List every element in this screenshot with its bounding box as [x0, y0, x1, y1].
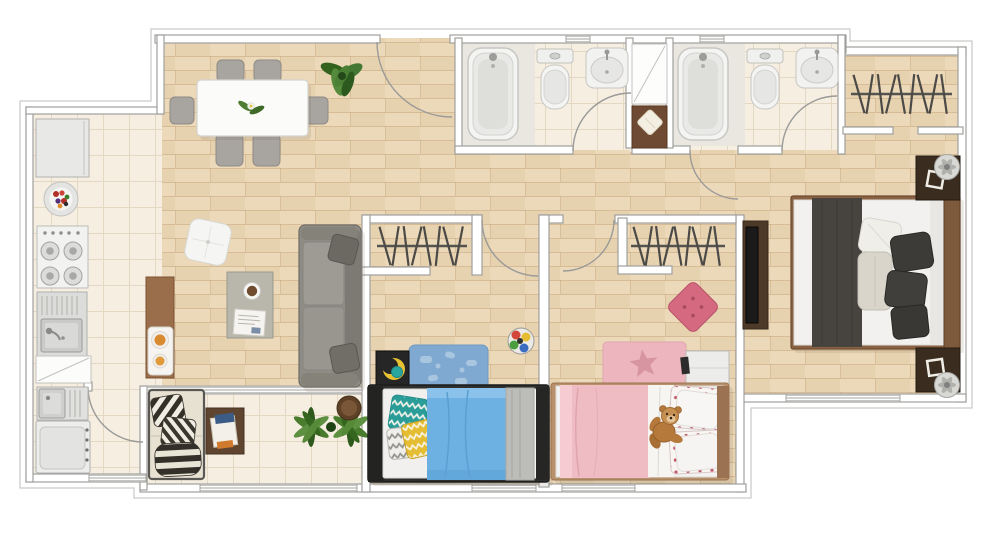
master-closet-wood-floor — [843, 50, 963, 134]
tv-screen — [746, 227, 758, 323]
sofa-pillow-top — [327, 233, 360, 266]
wall-bath1-west — [455, 38, 462, 152]
sink-drain — [61, 336, 65, 340]
tray-food-1 — [155, 335, 166, 346]
bath2-toilet-button — [760, 53, 770, 59]
wall-bath-south-c — [738, 146, 782, 154]
bath1-tub-drain — [491, 64, 495, 68]
wall-master-closet-south-b — [918, 127, 963, 134]
blue-rug-shape-3 — [466, 360, 477, 366]
palm-center — [326, 422, 336, 432]
wall-blue-closet-south — [362, 267, 430, 275]
fruit-4 — [55, 198, 60, 203]
wall-kitchen-top — [26, 107, 164, 114]
dining-chair-top-2 — [254, 60, 281, 82]
wall-pink-closet-west — [618, 218, 627, 273]
burner-2-center — [69, 247, 77, 255]
floor-plan-stage — [0, 0, 1000, 535]
toy-ball-patch-4 — [520, 344, 529, 353]
bath1-sink-bowl — [591, 57, 623, 83]
washer-hinge-1 — [85, 428, 88, 431]
wall-bedrooms-top-c — [615, 215, 736, 223]
bath2-tub-basin — [688, 59, 718, 129]
pink-bed-footboard — [717, 386, 729, 478]
wall-top-right — [843, 47, 966, 55]
pouf-button — [206, 240, 210, 244]
laundry-drain — [46, 396, 50, 400]
blue-bed-footboard — [536, 387, 549, 480]
bath1-toilet-seat — [544, 70, 566, 104]
bath1-toilet-button — [550, 53, 560, 59]
magazine — [233, 309, 266, 336]
dining-chair-top-1 — [217, 60, 244, 82]
blue-blanket-foldtop — [427, 388, 514, 398]
fan-bottom-center — [944, 382, 950, 388]
window-kitchen-bottom — [89, 474, 146, 482]
apartment-floor-plan — [0, 0, 1000, 535]
bath1-sink-faucet-dot — [605, 50, 610, 55]
blue-blanket-hem — [427, 470, 514, 480]
dining-chair-left — [170, 97, 194, 124]
coffee-cup-inner — [247, 286, 257, 296]
wall-top-a — [155, 35, 380, 43]
blue-blanket — [427, 388, 514, 480]
bath1-sink-drain — [605, 70, 609, 74]
teddy-eye-right — [673, 414, 675, 416]
window-bath2-top — [700, 35, 724, 43]
magazine-photo — [251, 327, 260, 334]
wall-bath2-east — [838, 35, 845, 154]
blue-rug-dot-2 — [460, 368, 465, 373]
wall-blue-closet-east — [472, 215, 482, 275]
washer-hinge-4 — [85, 458, 88, 461]
wall-dining-west — [157, 35, 164, 114]
sink-basin-inner — [45, 323, 78, 348]
teddy-nose — [670, 417, 673, 420]
blue-rug-shape-1 — [420, 356, 432, 363]
bath2-tub-faucet — [699, 53, 707, 61]
bench-pillow-3 — [154, 442, 202, 477]
wall-left — [26, 107, 33, 482]
wall-pink-closet-south — [618, 266, 672, 274]
niche — [632, 44, 667, 148]
washer-door — [40, 427, 85, 469]
bath1-tub-basin — [478, 59, 508, 129]
master-pillow-dark-1 — [889, 231, 934, 273]
master-pillow-dark-3 — [890, 304, 929, 340]
stove-knob-2 — [51, 231, 54, 234]
blue-lamp-ball — [392, 367, 403, 378]
washer-hinge-2 — [85, 438, 88, 441]
teddy-eye-left — [666, 413, 668, 415]
fruit-1 — [53, 191, 59, 197]
palm-pot-inner — [341, 400, 357, 416]
fruit-6 — [58, 204, 63, 209]
sofa-pillow-bottom — [329, 343, 361, 375]
pink-blanket-fold — [560, 385, 572, 478]
hall-wood-floor — [455, 146, 745, 222]
bath2-sink-bowl — [801, 57, 833, 83]
stove-knob-5 — [76, 231, 79, 234]
tray-food-2 — [156, 357, 165, 366]
laundry-basin-inner — [43, 393, 61, 414]
kitchen — [36, 119, 91, 473]
bath2-sink-drain — [815, 70, 819, 74]
wall-bath-south-a — [455, 146, 573, 154]
pink-blanket — [560, 385, 650, 478]
toy-ball-patch-5 — [517, 338, 523, 344]
stove-knob-3 — [59, 231, 62, 234]
burner-4-center — [69, 272, 77, 280]
wall-top-b — [450, 35, 845, 43]
fruit-7 — [64, 202, 68, 206]
washer-hinge-3 — [85, 448, 88, 451]
burner-3-center — [46, 272, 54, 280]
blue-rug-dot-1 — [436, 364, 441, 369]
wall-master-closet-south-a — [843, 127, 893, 134]
window-master-bottom — [786, 394, 900, 402]
fan-top-center — [944, 164, 950, 170]
bedroom-blue — [368, 328, 553, 486]
stove-knob-1 — [43, 231, 46, 234]
fridge — [36, 119, 89, 177]
window-bath1-top — [566, 35, 590, 43]
sofa-armrest-bottom — [301, 373, 358, 386]
master-pillow-dark-2 — [884, 270, 928, 311]
fruit-2 — [59, 190, 64, 195]
entry-plant-center — [338, 72, 346, 80]
window-balcony-bottom — [200, 484, 357, 492]
table-flower-center — [250, 105, 253, 108]
blue-rug-shape-5 — [455, 378, 467, 385]
bath2-toilet-seat — [754, 70, 776, 104]
wall-bedrooms-top-a — [362, 215, 482, 223]
bath2-sink-faucet-dot — [815, 50, 820, 55]
burner-1-center — [46, 247, 54, 255]
stove-knob-4 — [67, 231, 70, 234]
bath2-tub-drain — [701, 64, 705, 68]
bath1-tub-faucet — [489, 53, 497, 61]
window-pink-bottom — [562, 484, 635, 492]
master-headboard — [944, 194, 960, 351]
blue-bed-headboard — [368, 385, 383, 482]
